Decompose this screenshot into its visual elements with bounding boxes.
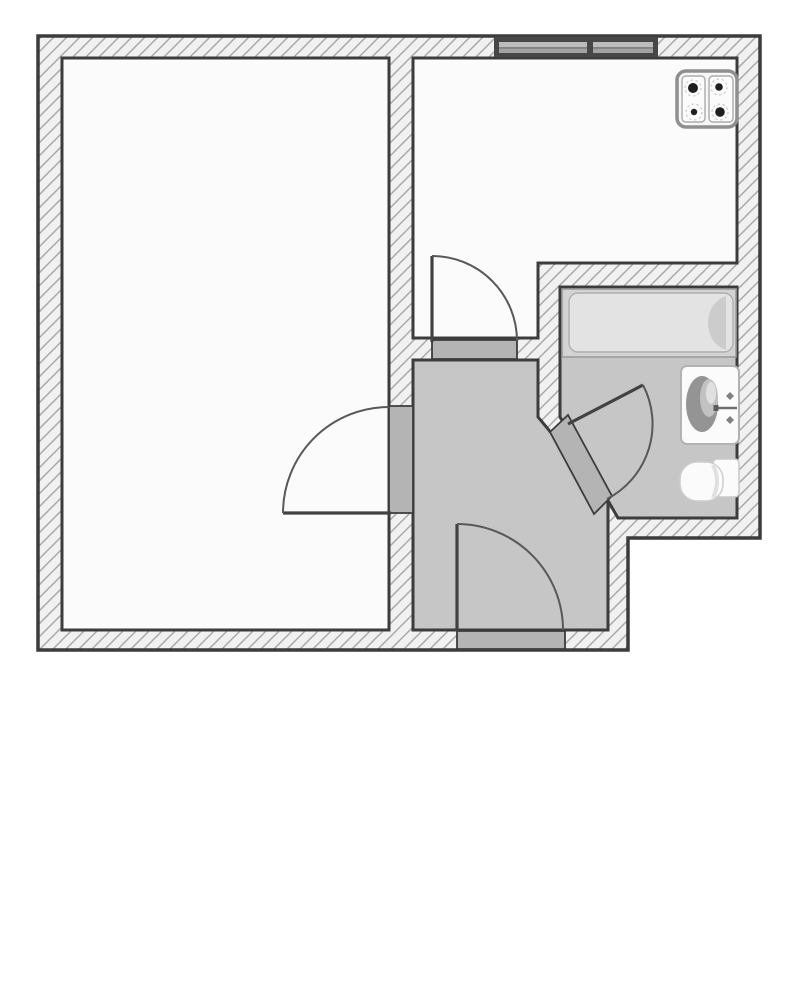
burner-1 — [688, 83, 698, 93]
living-room-door-opening — [389, 406, 413, 513]
window-pane-1-top — [499, 42, 587, 48]
window-pane-2-bottom — [593, 48, 653, 53]
wall-bathroom-bottom — [608, 518, 760, 538]
sink-faucet-base — [714, 405, 719, 411]
window-pane-1-bottom — [499, 48, 587, 53]
wall-left — [38, 36, 62, 650]
burner-3 — [715, 83, 723, 91]
sink-basin-highlight-2 — [706, 382, 716, 404]
burner-2 — [691, 109, 697, 115]
wall-living-divider-lower — [389, 513, 413, 630]
floor-plan-page — [0, 0, 800, 1000]
kitchen-window — [494, 37, 658, 57]
wall-kitchen-bath — [538, 263, 760, 287]
wall-bath-left — [538, 263, 560, 417]
toilet-icon — [680, 459, 739, 501]
wall-hall-right — [608, 518, 628, 650]
living-room-floor — [62, 58, 389, 630]
entrance-threshold — [457, 631, 565, 649]
floor-plan-svg — [0, 0, 800, 1000]
bathtub-icon — [562, 289, 736, 357]
sink-icon — [681, 366, 739, 444]
stove-icon — [677, 71, 737, 127]
kitchen-door-threshold — [432, 340, 517, 359]
wall-living-divider-upper — [389, 58, 413, 406]
window-pane-2-top — [593, 42, 653, 48]
burner-4 — [715, 107, 725, 117]
